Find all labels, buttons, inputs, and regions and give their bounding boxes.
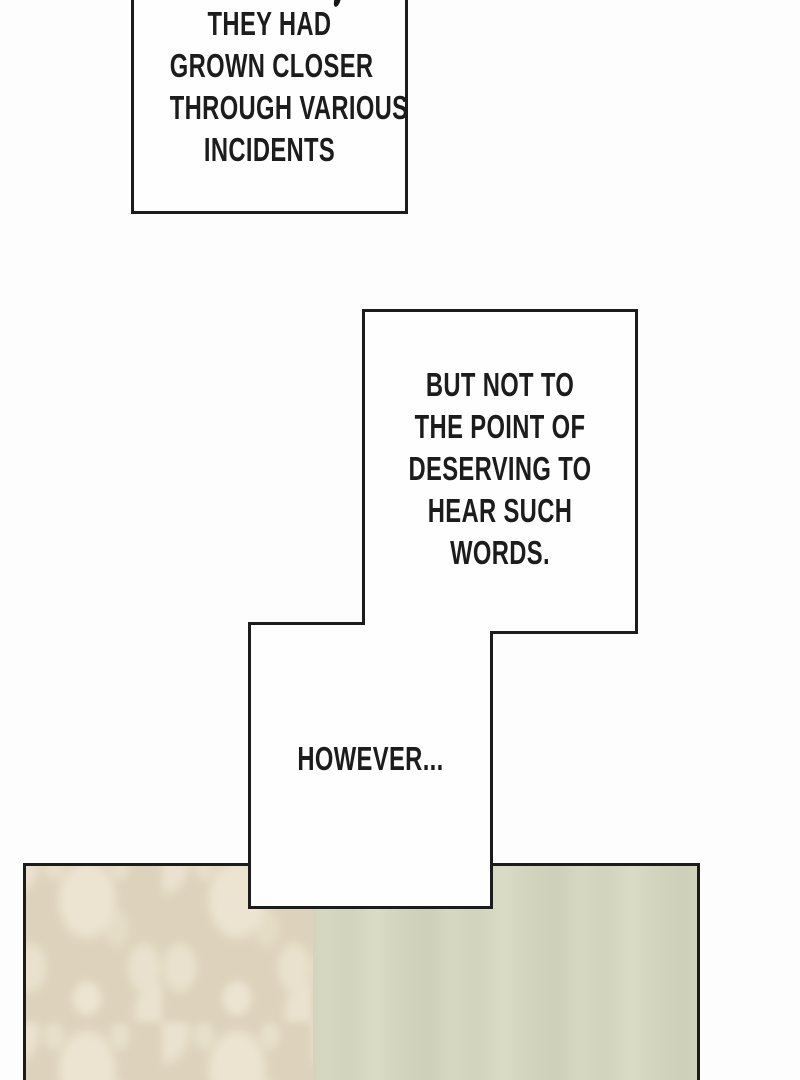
bubble-line: INCIDENTS [170, 129, 369, 171]
bubble-line: DESERVING TO [401, 448, 600, 490]
bubble-line: WORDS. [401, 532, 600, 574]
bubble-line: THEY HAD [170, 3, 369, 45]
bubble-middle-text: BUT NOT TO THE POINT OF DESERVING TO HEA… [362, 364, 638, 574]
bubble-line: HEAR SUCH [401, 490, 600, 532]
bubble-top-text: THEY HAD GROWN CLOSER THROUGH VARIOUS IN… [131, 3, 408, 171]
bubble-line: BUT NOT TO [401, 364, 600, 406]
bubble-line: THE POINT OF [401, 406, 600, 448]
comic-page: THEY HAD GROWN CLOSER THROUGH VARIOUS IN… [0, 0, 800, 1080]
bubble-line: GROWN CLOSER [170, 45, 369, 87]
bubble-line: THROUGH VARIOUS [170, 87, 369, 129]
bubble-line: HOWEVER... [282, 738, 458, 780]
bubble-lower-text: HOWEVER... [248, 738, 493, 780]
